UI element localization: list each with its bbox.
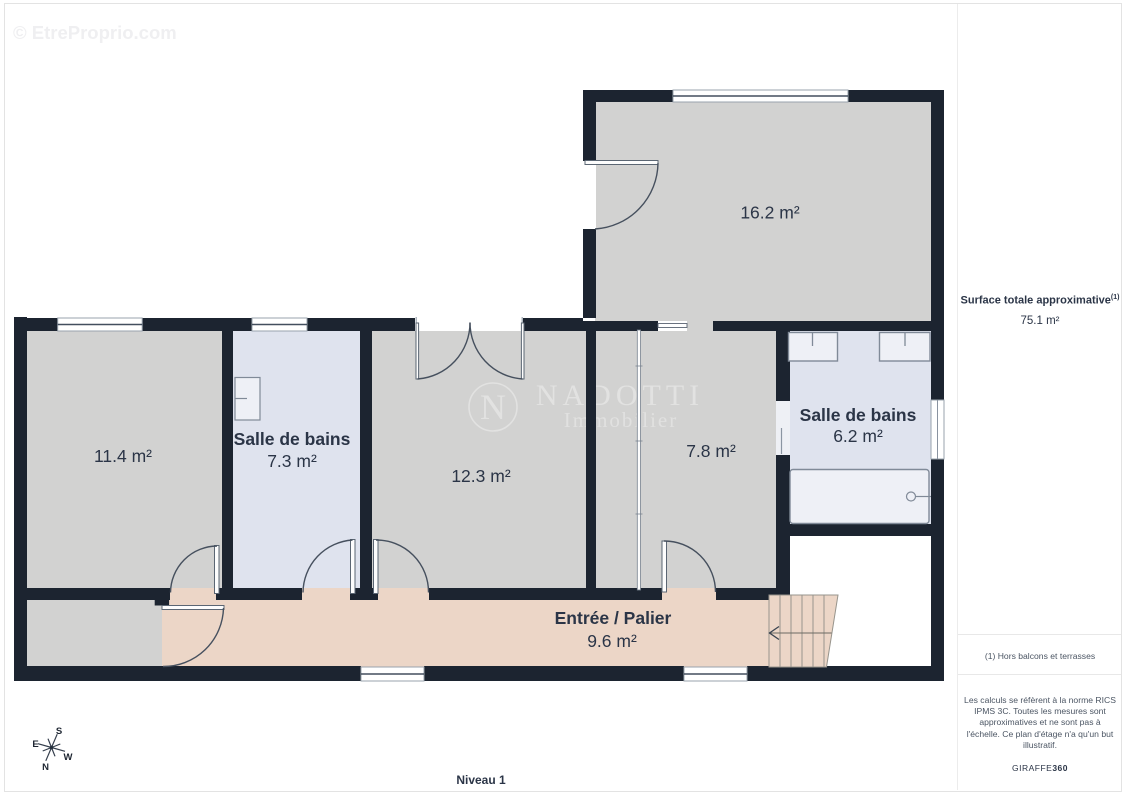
svg-text:S: S — [56, 726, 62, 737]
svg-text:E: E — [32, 739, 38, 750]
svg-text:Entrée / Palier: Entrée / Palier — [555, 608, 672, 628]
svg-text:6.2 m²: 6.2 m² — [833, 426, 883, 446]
svg-text:9.6 m²: 9.6 m² — [587, 631, 637, 651]
svg-text:W: W — [64, 752, 73, 763]
svg-text:N: N — [42, 762, 49, 773]
svg-text:Niveau 1: Niveau 1 — [456, 773, 506, 787]
svg-text:Salle de bains: Salle de bains — [234, 429, 351, 449]
svg-text:Salle de bains: Salle de bains — [800, 405, 917, 425]
svg-text:Immobilier: Immobilier — [564, 408, 678, 432]
svg-text:16.2 m²: 16.2 m² — [740, 203, 799, 223]
svg-text:7.3 m²: 7.3 m² — [267, 451, 317, 471]
svg-text:11.4 m²: 11.4 m² — [94, 446, 152, 466]
svg-text:12.3 m²: 12.3 m² — [451, 466, 510, 486]
svg-text:7.8 m²: 7.8 m² — [686, 441, 736, 461]
svg-text:N: N — [480, 387, 506, 427]
